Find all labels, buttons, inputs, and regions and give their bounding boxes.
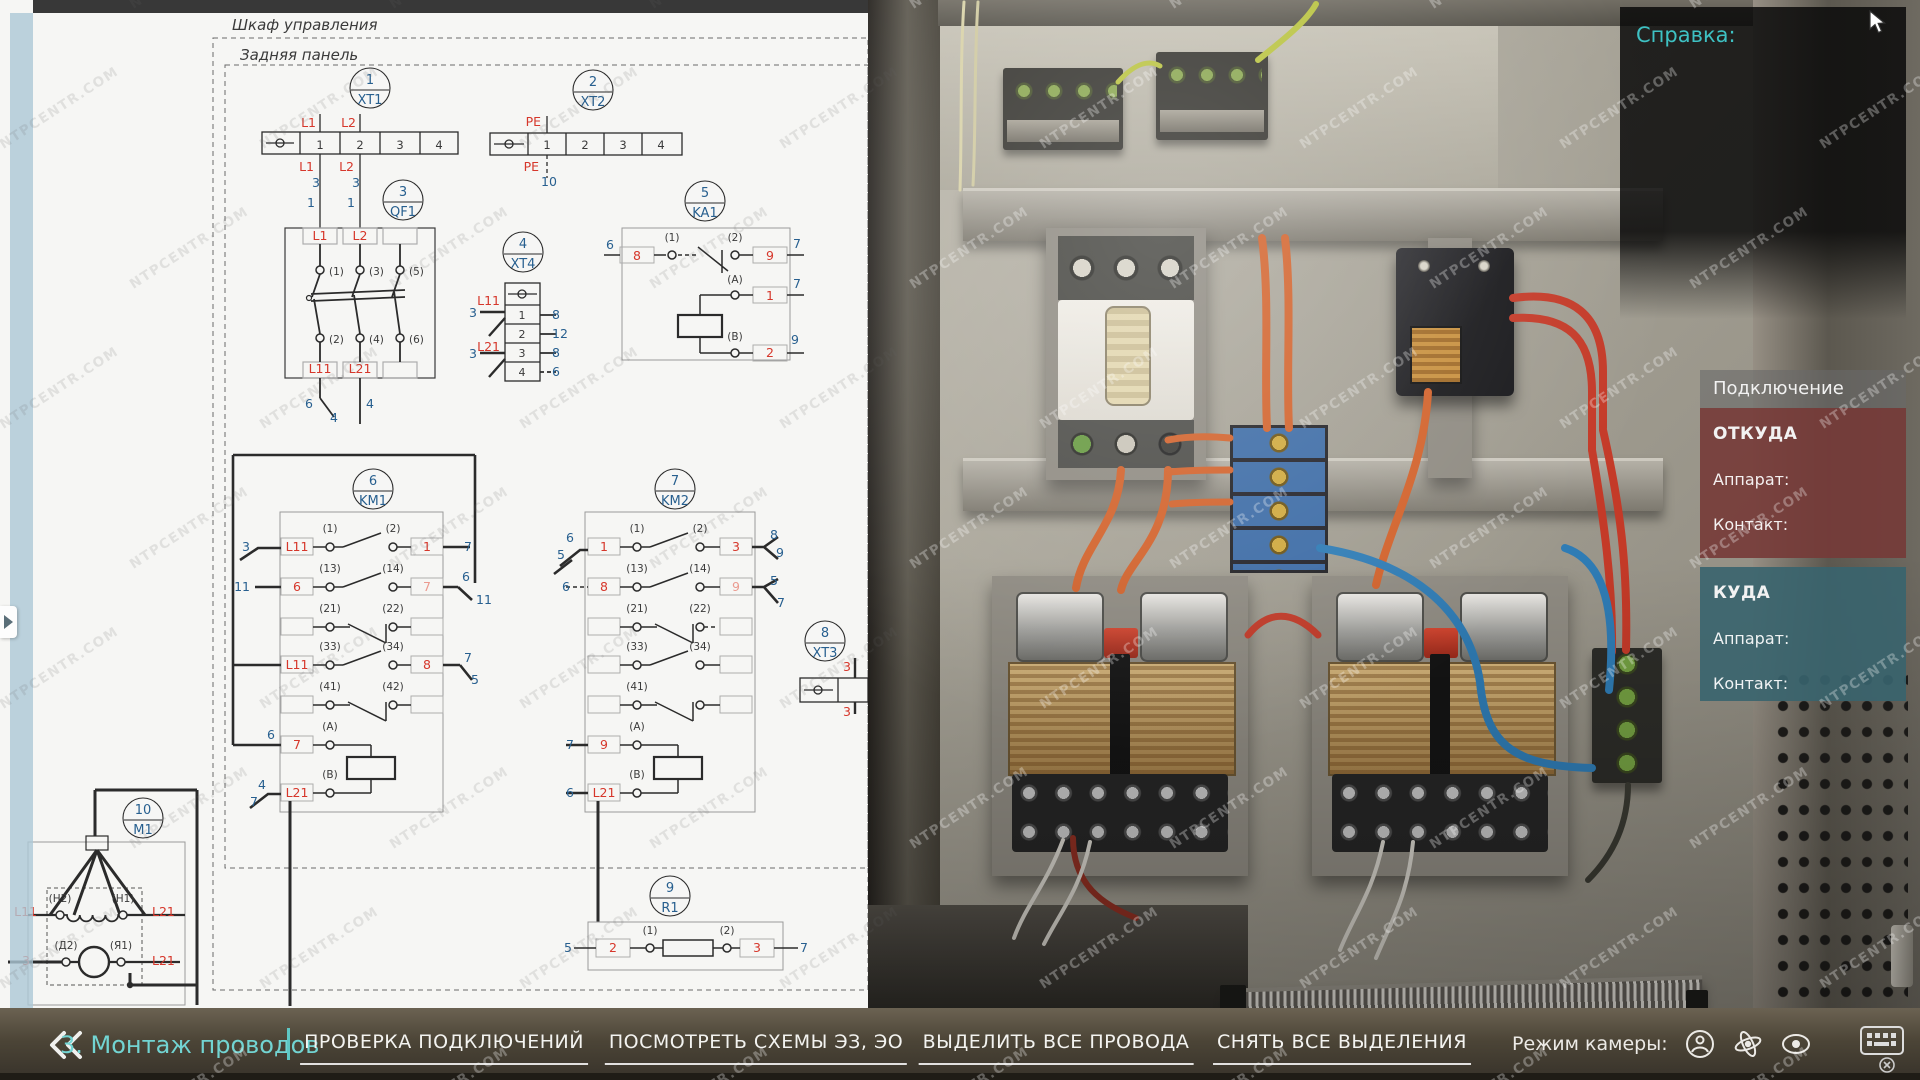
schematic-label: 1 [543,138,550,152]
svg-text:7: 7 [671,474,679,489]
schematic-label: (4) [369,334,384,346]
help-panel-title: Справка: [1620,7,1906,47]
schematic-label: 3 [469,346,477,361]
select-all-wires-button[interactable]: ВЫДЕЛИТЬ ВСЕ ПРОВОДА [919,1031,1194,1065]
schematic-label: 4 [366,396,374,411]
clear-selections-button[interactable]: СНЯТЬ ВСЕ ВЫДЕЛЕНИЯ [1213,1031,1471,1065]
svg-text:XT4: XT4 [511,257,536,272]
schematic-label: (2) [329,334,344,346]
schematic-label: (A) [629,721,644,733]
schematic-label: 8 [600,579,608,594]
svg-text:8: 8 [821,626,829,641]
schematic-label: (21) [319,603,341,615]
svg-text:3: 3 [399,185,407,200]
svg-text:10: 10 [135,803,152,818]
schematic-label: L21 [349,361,372,376]
schematic-label: PE [526,114,542,129]
schematic-label: (2) [728,232,743,244]
schematic-label: 3 [469,305,477,320]
schematic-label: 2 [609,940,617,955]
schematic-label: 4 [519,366,526,379]
svg-text:9: 9 [666,881,674,896]
schematic-label: L21 [286,785,309,800]
schematic-label: (34) [689,641,711,653]
svg-text:KM2: KM2 [661,494,689,509]
schematic-label: (A) [727,274,742,286]
schematic-label: 9 [766,248,774,263]
schematic-label: (2) [720,925,735,937]
schematic-label: 1 [307,195,315,210]
schematic-label: (13) [319,563,341,575]
schematic-label: 4 [258,777,266,792]
schematic-label: 11 [234,579,250,594]
schematic-label: (1) [665,232,680,244]
component-ref-m1: 10M1 [123,798,163,838]
schematic-label: L21 [593,785,616,800]
schematic-label: L2 [341,115,356,130]
orbit-view-icon[interactable] [1732,1028,1764,1060]
schematic-label: L11 [477,293,500,308]
schematic-label: L11 [286,657,309,672]
schematic-label: (13) [626,563,648,575]
schematic-label: 1 [316,138,323,152]
schematic-label: 10 [541,174,557,189]
schematic-label: 1 [423,539,431,554]
schematic-label: 3 [843,659,851,674]
schematic-label: (A) [322,721,337,733]
schematic-label: 4 [330,410,338,425]
schematic-label: 2 [356,138,363,152]
schematic-label: L21 [477,339,500,354]
schematic-label: 7 [423,579,431,594]
schematic-label: 8 [552,307,560,322]
app-window: Шкаф управленияЗадняя панельL1L21234L13L… [0,0,1920,1080]
component-ref-xt2: 2XT2 [573,70,613,110]
svg-text:6: 6 [369,474,377,489]
from-title: ОТКУДА [1700,408,1906,444]
schematic-label: L21 [152,953,175,968]
connection-from-section: ОТКУДА Аппарат: Контакт: [1700,408,1906,558]
keypad-icon[interactable] [1858,1022,1906,1060]
schematic-scroll-strip[interactable] [10,13,33,1008]
schematic-label: 7 [250,794,258,809]
schematic-label: (22) [382,603,404,615]
schematic-label: 8 [633,248,641,263]
svg-text:M1: M1 [133,823,153,838]
schematic-panel: Шкаф управленияЗадняя панельL1L21234L13L… [0,0,868,1008]
schematic-label: 3 [619,138,626,152]
schematic-label: 2 [581,138,588,152]
schematic-label: 3 [396,138,403,152]
schematic-label: 3 [519,347,526,360]
schematic-label: 9 [732,579,740,594]
panel-collapse-arrow[interactable] [0,606,17,638]
to-device-label: Аппарат: [1700,603,1906,648]
view-schematics-button[interactable]: ПОСМОТРЕТЬ СХЕМЫ ЭЗ, ЭО [605,1031,907,1065]
schematic-label: 8 [423,657,431,672]
schematic-label: 1 [347,195,355,210]
schematic-label: 4 [657,138,664,152]
schematic-label: 2 [766,345,774,360]
xt3-block[interactable] [800,658,868,714]
schematic-label: 2 [519,328,526,341]
svg-text:XT1: XT1 [358,93,383,108]
schematic-label: 3 [753,940,761,955]
component-ref-km2: 7KM2 [655,469,695,509]
schematic-label: (2) [693,523,708,535]
schematic-label: (Н2) [49,893,72,905]
schematic-label: (41) [626,681,648,693]
schematic-label: (42) [382,681,404,693]
step-label: 3. Монтаж проводов [60,1031,319,1059]
close-icon[interactable] [1878,1056,1896,1074]
perforation-grid [1773,668,1908,1008]
schematic-label: L2 [353,228,368,243]
schematic-label: (1) [643,925,658,937]
mouse-cursor [1868,10,1892,36]
free-look-eye-icon[interactable] [1780,1028,1812,1060]
xt1-block[interactable] [262,114,458,228]
component-ref-xt3: 8XT3 [805,621,845,661]
component-ref-ka1: 5KA1 [685,181,725,221]
schematic-label: L1 [301,115,316,130]
schematic-label: 9 [776,545,784,560]
schematic-label: 6 [462,569,470,584]
schematic-label: L21 [152,904,175,919]
schematic-label: 3 [242,539,250,554]
schematic-label: 1 [519,309,526,322]
schematic-top-bar [33,0,868,13]
schematic-label: 3 [732,539,740,554]
schematic-label: 1 [600,539,608,554]
schematic-label: (1) [323,523,338,535]
schematic-label: 6 [566,785,574,800]
schematic-label: 6 [562,579,570,594]
schematic-label: 6 [552,364,560,379]
schematic-label: 6 [305,396,313,411]
schematic-label: (B) [629,769,644,781]
schematic-label: (41) [319,681,341,693]
camera-mode-label: Режим камеры: [1512,1033,1668,1055]
qf1-block[interactable] [285,228,435,424]
schematic-label: L1 [313,228,328,243]
schematic-label: 7 [800,940,808,955]
schematic-label: (3) [369,266,384,278]
svg-text:2: 2 [589,75,597,90]
schematic-label: 6 [566,530,574,545]
schematic-label: (33) [626,641,648,653]
component-ref-qf1: 3QF1 [383,180,423,220]
schematic-label: L2 [339,159,354,174]
km2-block[interactable] [554,512,778,922]
schematic-label: Шкаф управления [232,16,378,34]
schematic-label: 7 [464,539,472,554]
component-ref-xt1: 1XT1 [350,68,390,108]
schematic-label: 5 [471,672,479,687]
schematic-label: 8 [552,345,560,360]
svg-text:1: 1 [366,73,374,88]
door-hinge [1891,925,1913,987]
schematic-label: L1 [299,159,314,174]
to-contact-label: Контакт: [1700,648,1906,693]
schematic-label: (5) [409,266,424,278]
connection-panel: Подключение ОТКУДА Аппарат: Контакт: КУД… [1700,370,1906,701]
schematic-label: (22) [689,603,711,615]
schematic-label: 5 [557,547,565,562]
schematic-label: 8 [770,527,778,542]
schematic-label: (B) [727,331,742,343]
schematic-label: (21) [626,603,648,615]
schematic-label: 9 [791,332,799,347]
m1-motor[interactable] [8,790,197,1005]
schematic-label: 5 [564,940,572,955]
schematic-label: 7 [793,236,801,251]
schematic-label: 3 [352,175,360,190]
check-connections-button[interactable]: ПРОВЕРКА ПОДКЛЮЧЕНИЙ [300,1031,588,1065]
svg-text:KM1: KM1 [359,494,387,509]
schematic-label: 5 [770,573,778,588]
component-circles: 1XT12XT23QF14XT45KA16KM17KM28XT39R110M1 [123,68,845,916]
from-contact-label: Контакт: [1700,489,1906,534]
schematic-label: 3 [843,704,851,719]
schematic-label: (33) [319,641,341,653]
r1-block[interactable] [574,922,798,970]
schematic-label: 9 [600,737,608,752]
schematic-label: 7 [566,737,574,752]
schematic-label: 7 [293,737,301,752]
schematic-label: 1 [766,288,774,303]
component-ref-r1: 9R1 [650,876,690,916]
schematic-label: 3 [312,175,320,190]
schematic-label: Задняя панель [240,46,358,64]
schematic-label: 4 [435,138,442,152]
from-device-label: Аппарат: [1700,444,1906,489]
schematic-label: (14) [689,563,711,575]
schematic-label: 6 [267,727,275,742]
svg-text:XT3: XT3 [813,646,838,661]
schematic-label: 11 [476,592,492,607]
help-panel: Справка: [1620,7,1906,319]
schematic-label: (Н1) [112,893,135,905]
component-ref-xt4: 4XT4 [503,232,543,272]
schematic-label: (Я1) [110,940,132,952]
schematic-label: (1) [329,266,344,278]
to-title: КУДА [1700,567,1906,603]
schematic-label: (6) [409,334,424,346]
svg-text:KA1: KA1 [692,206,717,221]
schematic-label: L11 [309,361,332,376]
schematic-label: 12 [552,326,568,341]
component-ref-km1: 6KM1 [353,469,393,509]
connection-to-section: КУДА Аппарат: Контакт: [1700,567,1906,701]
svg-text:R1: R1 [661,901,678,916]
svg-text:4: 4 [519,237,527,252]
schematic-label: (B) [322,769,337,781]
schematic-label: (34) [382,641,404,653]
schematic-label: 7 [793,276,801,291]
schematic-label: 7 [464,650,472,665]
schematic-label: (1) [630,523,645,535]
schematic-label: 7 [777,595,785,610]
schematic-label: PE [524,159,540,174]
person-view-icon[interactable] [1684,1028,1716,1060]
schematic-label: (14) [382,563,404,575]
connection-panel-title: Подключение [1700,370,1906,408]
schematic-label: 6 [606,237,614,252]
schematic-label: L11 [286,539,309,554]
svg-text:5: 5 [701,186,709,201]
svg-text:QF1: QF1 [390,205,416,220]
toolbar-separator [287,1028,290,1060]
schematic-label: 6 [293,579,301,594]
schematic-label: (Д2) [54,940,77,952]
svg-text:XT2: XT2 [581,95,606,110]
schematic-drawing: Шкаф управленияЗадняя панельL1L21234L13L… [0,0,868,1008]
schematic-label: (2) [386,523,401,535]
